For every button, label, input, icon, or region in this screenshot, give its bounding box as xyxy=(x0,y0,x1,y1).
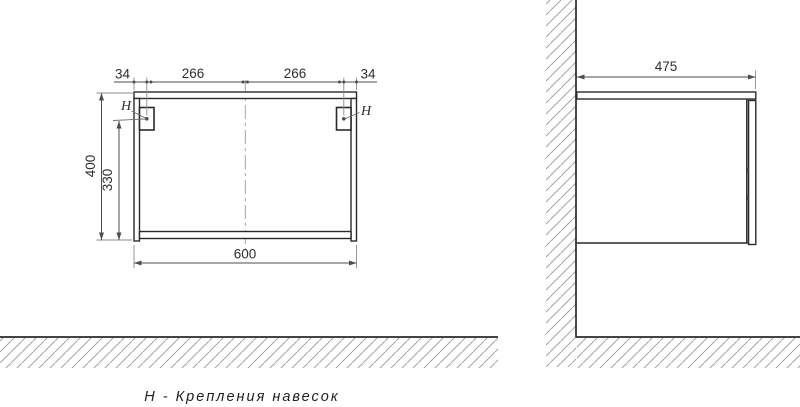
right-bracket-center-mark xyxy=(342,117,346,121)
cabinet-right-side-panel xyxy=(351,99,357,242)
depth-dimension: 475 xyxy=(577,59,756,89)
technical-drawing-canvas: 34 266 266 34 400 330 600 H H xyxy=(0,0,800,407)
cabinet-bottom-shelf xyxy=(140,232,352,239)
dim-top-right-margin: 34 xyxy=(360,67,376,82)
width-dimension: 600 xyxy=(134,245,357,268)
dim-width: 600 xyxy=(234,247,257,262)
dim-top-right-span: 266 xyxy=(284,66,307,81)
dim-top-left-span: 266 xyxy=(182,66,205,81)
right-mount-label: H xyxy=(360,104,372,119)
front-view xyxy=(134,80,357,250)
dim-mount-height: 330 xyxy=(100,169,115,192)
side-top-panel xyxy=(577,92,756,99)
dim-height: 400 xyxy=(83,155,98,178)
ground-hatching-left xyxy=(0,338,498,368)
side-door-panel xyxy=(749,101,756,245)
cabinet-top-panel xyxy=(134,92,357,99)
drawing-caption: Н - Крепления навесок xyxy=(144,389,339,405)
left-mount-label: H xyxy=(120,99,132,114)
dim-depth: 475 xyxy=(655,59,678,74)
ground xyxy=(0,337,800,368)
mount-labels: H H xyxy=(120,99,372,119)
cabinet-mounting-drawing: 34 266 266 34 400 330 600 H H xyxy=(0,0,800,407)
height-dimension: 400 xyxy=(83,93,134,240)
ground-hatching-right xyxy=(577,338,800,368)
wall-hatching xyxy=(546,0,576,367)
dim-top-left-margin: 34 xyxy=(115,67,131,82)
side-view xyxy=(546,0,756,367)
